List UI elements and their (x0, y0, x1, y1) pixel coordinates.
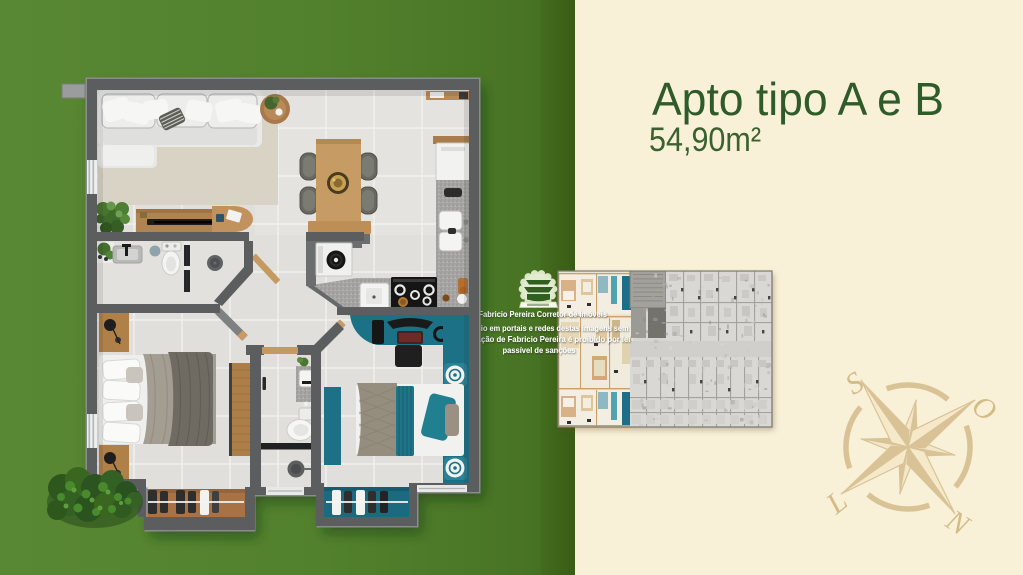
svg-text:© Fabricio Pereira Corretor de: © Fabricio Pereira Corretor de Imóveis (471, 309, 607, 319)
svg-text:Apto tipo A e B: Apto tipo A e B (652, 73, 944, 125)
svg-text:passível de sanções: passível de sanções (503, 345, 576, 355)
svg-text:54,90m²: 54,90m² (649, 121, 761, 159)
